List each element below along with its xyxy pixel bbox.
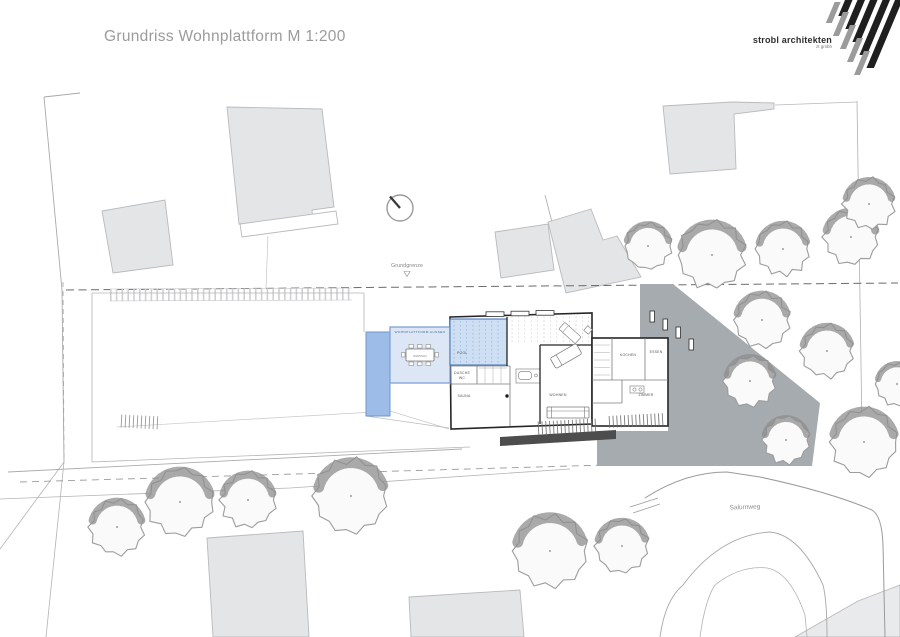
facade-windows xyxy=(486,311,554,317)
road-curve-inner xyxy=(700,568,807,637)
building-footprint xyxy=(663,102,774,174)
tree-icon xyxy=(755,221,809,277)
lap-pool xyxy=(366,332,390,416)
living-label: WOHNEN xyxy=(549,393,566,397)
street-label: Salurnweg xyxy=(729,503,760,511)
spa-label: SAUNA xyxy=(457,394,471,398)
logo-subtitle: zt gmbh xyxy=(736,45,832,50)
hedge-strip xyxy=(110,288,352,301)
logo-stripes-icon xyxy=(826,0,900,75)
kitchen-block-icon xyxy=(630,386,644,393)
tree-icon xyxy=(219,471,276,528)
boundary-marker-icon xyxy=(404,272,410,277)
kitchen-label: KOCHEN xyxy=(620,353,636,357)
wc-label: WC xyxy=(459,376,466,380)
road-curve-middle xyxy=(660,532,827,637)
building-footprint xyxy=(495,224,554,278)
logo: strobl architekten zt gmbh xyxy=(736,36,832,50)
house: WOHNPLATTFORM AUSSEN ESSTISCH POOL xyxy=(366,311,668,446)
tree-icon xyxy=(145,468,213,537)
building-footprint xyxy=(102,200,173,273)
grundgrenze-line xyxy=(66,283,898,290)
tree-icon xyxy=(88,499,145,556)
building-footprint xyxy=(207,531,309,637)
tree-icon xyxy=(312,457,387,534)
north-arrow-icon xyxy=(387,195,413,221)
tree-icon xyxy=(594,519,649,573)
tree-icon xyxy=(829,406,897,477)
site-plan-page: WOHNPLATTFORM AUSSEN ESSTISCH POOL xyxy=(0,0,900,637)
site-plan-drawing: WOHNPLATTFORM AUSSEN ESSTISCH POOL xyxy=(0,0,900,637)
tree-icon xyxy=(799,323,853,379)
column-dot xyxy=(505,394,508,397)
shower-label: DUSCHE xyxy=(454,371,470,375)
page-title: Grundriss Wohnplattform M 1:200 xyxy=(104,28,346,46)
pool-label: POOL xyxy=(457,351,468,355)
tree-icon xyxy=(734,291,791,348)
table-label: ESSTISCH xyxy=(414,354,427,358)
tree-icon xyxy=(678,220,746,288)
dining-label: ESSEN xyxy=(650,350,663,354)
bedroom-label: ZIMMER xyxy=(638,393,653,397)
tree-icon xyxy=(512,514,587,589)
terrace-header-label: WOHNPLATTFORM AUSSEN xyxy=(395,330,446,334)
garden-stairs xyxy=(121,421,161,423)
boundary-label: Grundgrenze xyxy=(391,263,423,269)
tree-icon xyxy=(875,362,900,406)
sofa-icon xyxy=(547,407,589,418)
tree-icon xyxy=(625,222,672,269)
building-footprint xyxy=(409,590,524,637)
building-footprint xyxy=(227,107,334,224)
